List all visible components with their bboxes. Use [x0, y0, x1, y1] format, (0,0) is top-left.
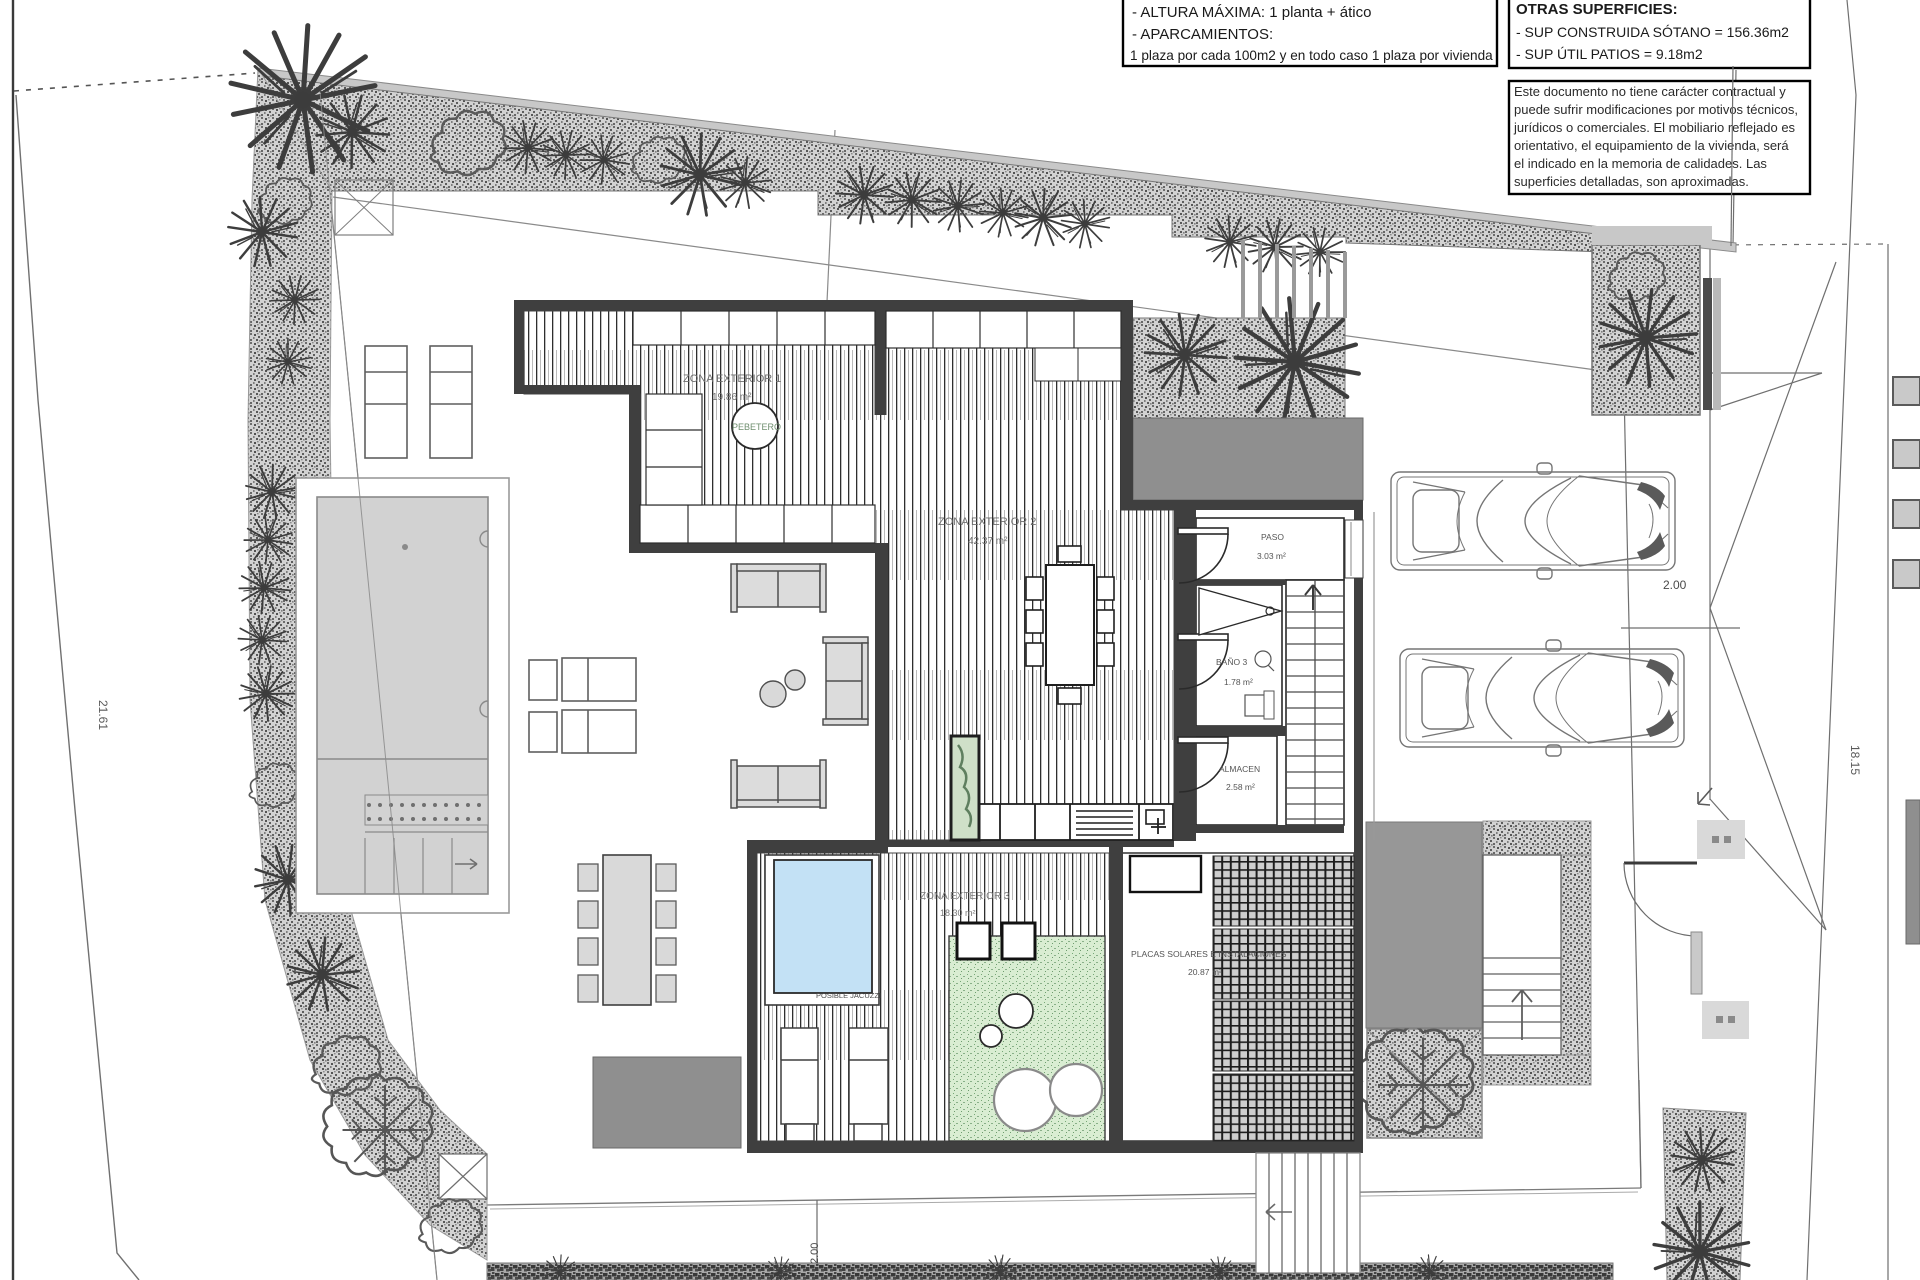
svg-text:21.61: 21.61 — [96, 700, 110, 730]
svg-text:18.30 m²: 18.30 m² — [940, 908, 976, 918]
svg-text:PASO: PASO — [1261, 532, 1284, 542]
svg-text:el indicado en la memoria de c: el indicado en la memoria de calidades. … — [1514, 156, 1767, 171]
svg-text:- SUP CONSTRUIDA SÓTANO = 15: - SUP CONSTRUIDA SÓTANO = 156.36m2 — [1516, 24, 1789, 40]
svg-text:18.15: 18.15 — [1848, 745, 1862, 775]
svg-text:BAÑO 3: BAÑO 3 — [1216, 657, 1247, 667]
svg-text:orientativo, el equipamiento d: orientativo, el equipamiento de la vivie… — [1514, 138, 1789, 153]
svg-text:ZONA EXTERIOR 3: ZONA EXTERIOR 3 — [920, 891, 1010, 902]
svg-text:PEBETERO: PEBETERO — [732, 422, 781, 432]
svg-text:Este documento no tiene caráct: Este documento no tiene carácter contrac… — [1514, 84, 1786, 99]
svg-text:20.87 m²: 20.87 m² — [1188, 967, 1222, 977]
svg-text:1.78 m²: 1.78 m² — [1224, 677, 1253, 687]
svg-text:- APARCAMIENTOS:: - APARCAMIENTOS: — [1132, 26, 1273, 43]
svg-text:ZONA EXTERIOR 1: ZONA EXTERIOR 1 — [683, 373, 781, 385]
svg-text:superficies detalladas, son ap: superficies detalladas, son aproximadas. — [1514, 174, 1749, 189]
svg-text:3.03 m²: 3.03 m² — [1257, 551, 1286, 561]
svg-text:2.00: 2.00 — [809, 1243, 821, 1264]
svg-text:OTRAS SUPERFICIES:: OTRAS SUPERFICIES: — [1516, 1, 1678, 18]
svg-text:PLACAS SOLARES E INSTALACIONES: PLACAS SOLARES E INSTALACIONES — [1131, 949, 1287, 959]
svg-text:19.86 m²: 19.86 m² — [712, 392, 752, 403]
svg-text:- ALTURA MÁXIMA: 1 planta + át: - ALTURA MÁXIMA: 1 planta + ático — [1132, 4, 1371, 21]
svg-text:2.00: 2.00 — [1663, 578, 1687, 592]
svg-text:42.37 m²: 42.37 m² — [968, 536, 1008, 547]
svg-text:jurídicos o comerciales. El mo: jurídicos o comerciales. El mobiliario r… — [1513, 120, 1796, 135]
svg-text:puede sufrir modificaciones po: puede sufrir modificaciones por motivos … — [1514, 102, 1798, 117]
svg-text:ZONA EXTERIOR 2: ZONA EXTERIOR 2 — [938, 516, 1036, 528]
svg-text:1 plaza por cada 100m2 y en to: 1 plaza por cada 100m2 y en todo caso 1 … — [1130, 48, 1493, 63]
svg-text:2.58 m²: 2.58 m² — [1226, 782, 1255, 792]
svg-text:- SUP ÚTIL PATIOS = 9.18m2: - SUP ÚTIL PATIOS = 9.18m2 — [1516, 46, 1703, 62]
svg-text:POSIBLE JACUZZI: POSIBLE JACUZZI — [816, 991, 881, 1000]
svg-text:ALMACEN: ALMACEN — [1219, 764, 1260, 774]
